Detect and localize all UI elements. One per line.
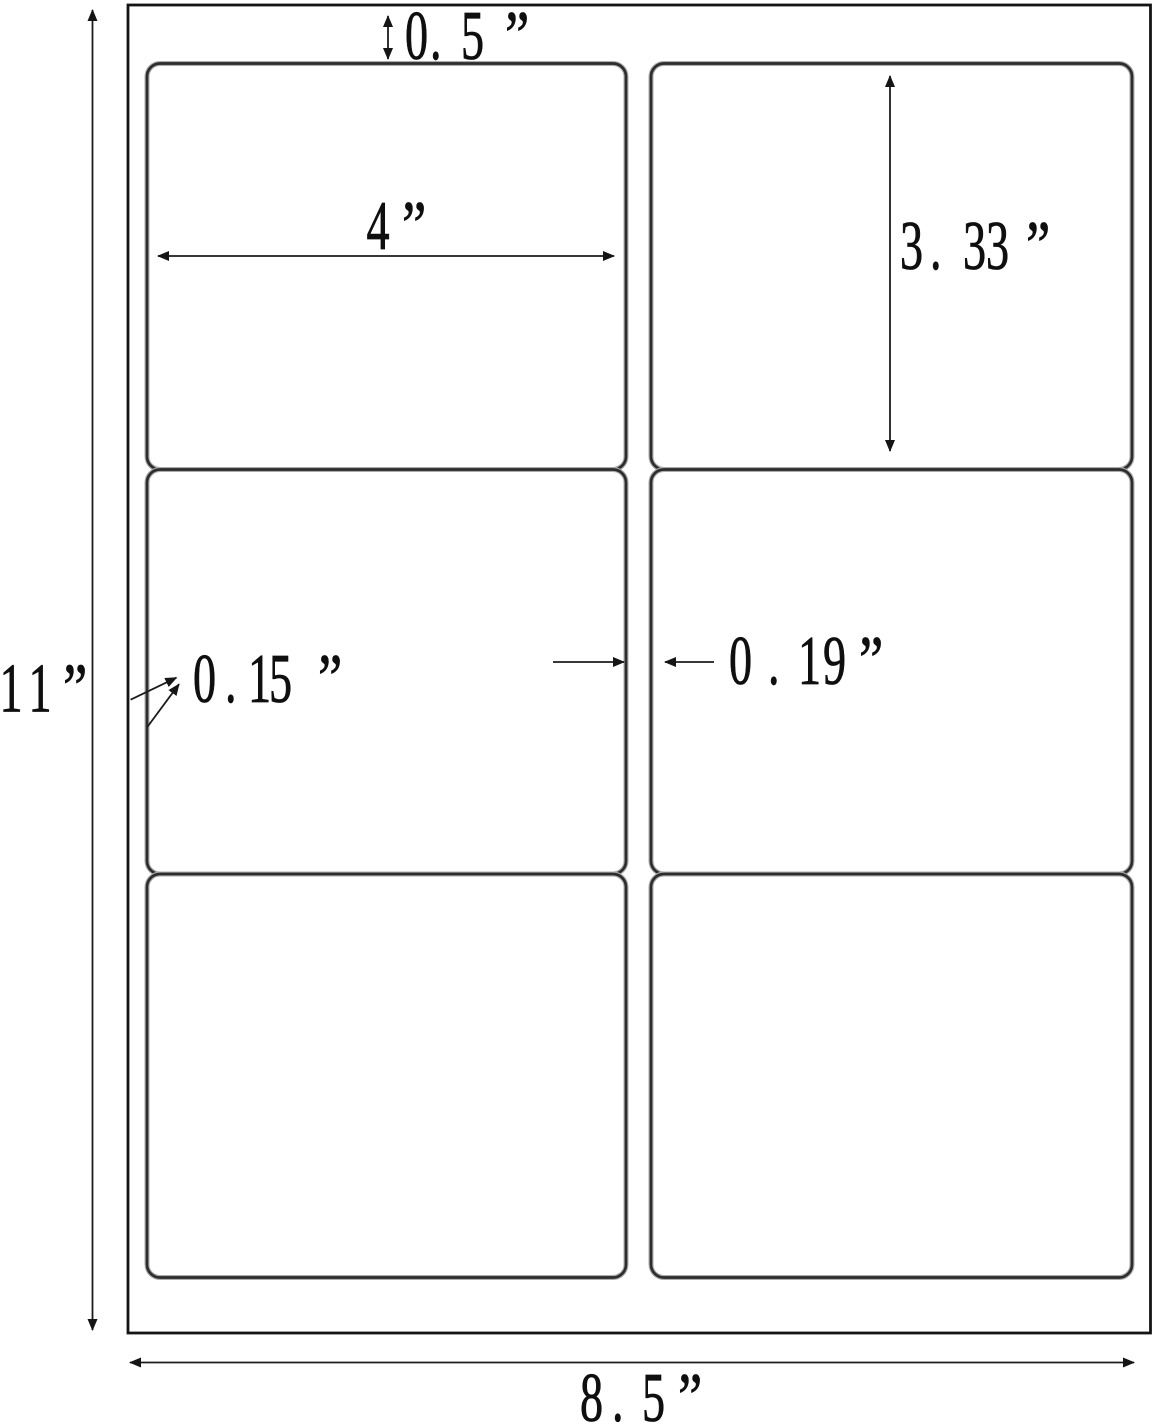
svg-text:”: ” — [402, 187, 426, 265]
svg-text:8.5: 8.5 — [580, 1358, 665, 1422]
svg-text:”: ” — [678, 1359, 702, 1422]
svg-text:4: 4 — [366, 186, 389, 264]
svg-text:”: ” — [1026, 207, 1050, 285]
svg-text:”: ” — [505, 0, 529, 75]
svg-text:”: ” — [859, 622, 883, 700]
svg-text:”: ” — [318, 640, 342, 718]
svg-text:”: ” — [63, 649, 87, 727]
